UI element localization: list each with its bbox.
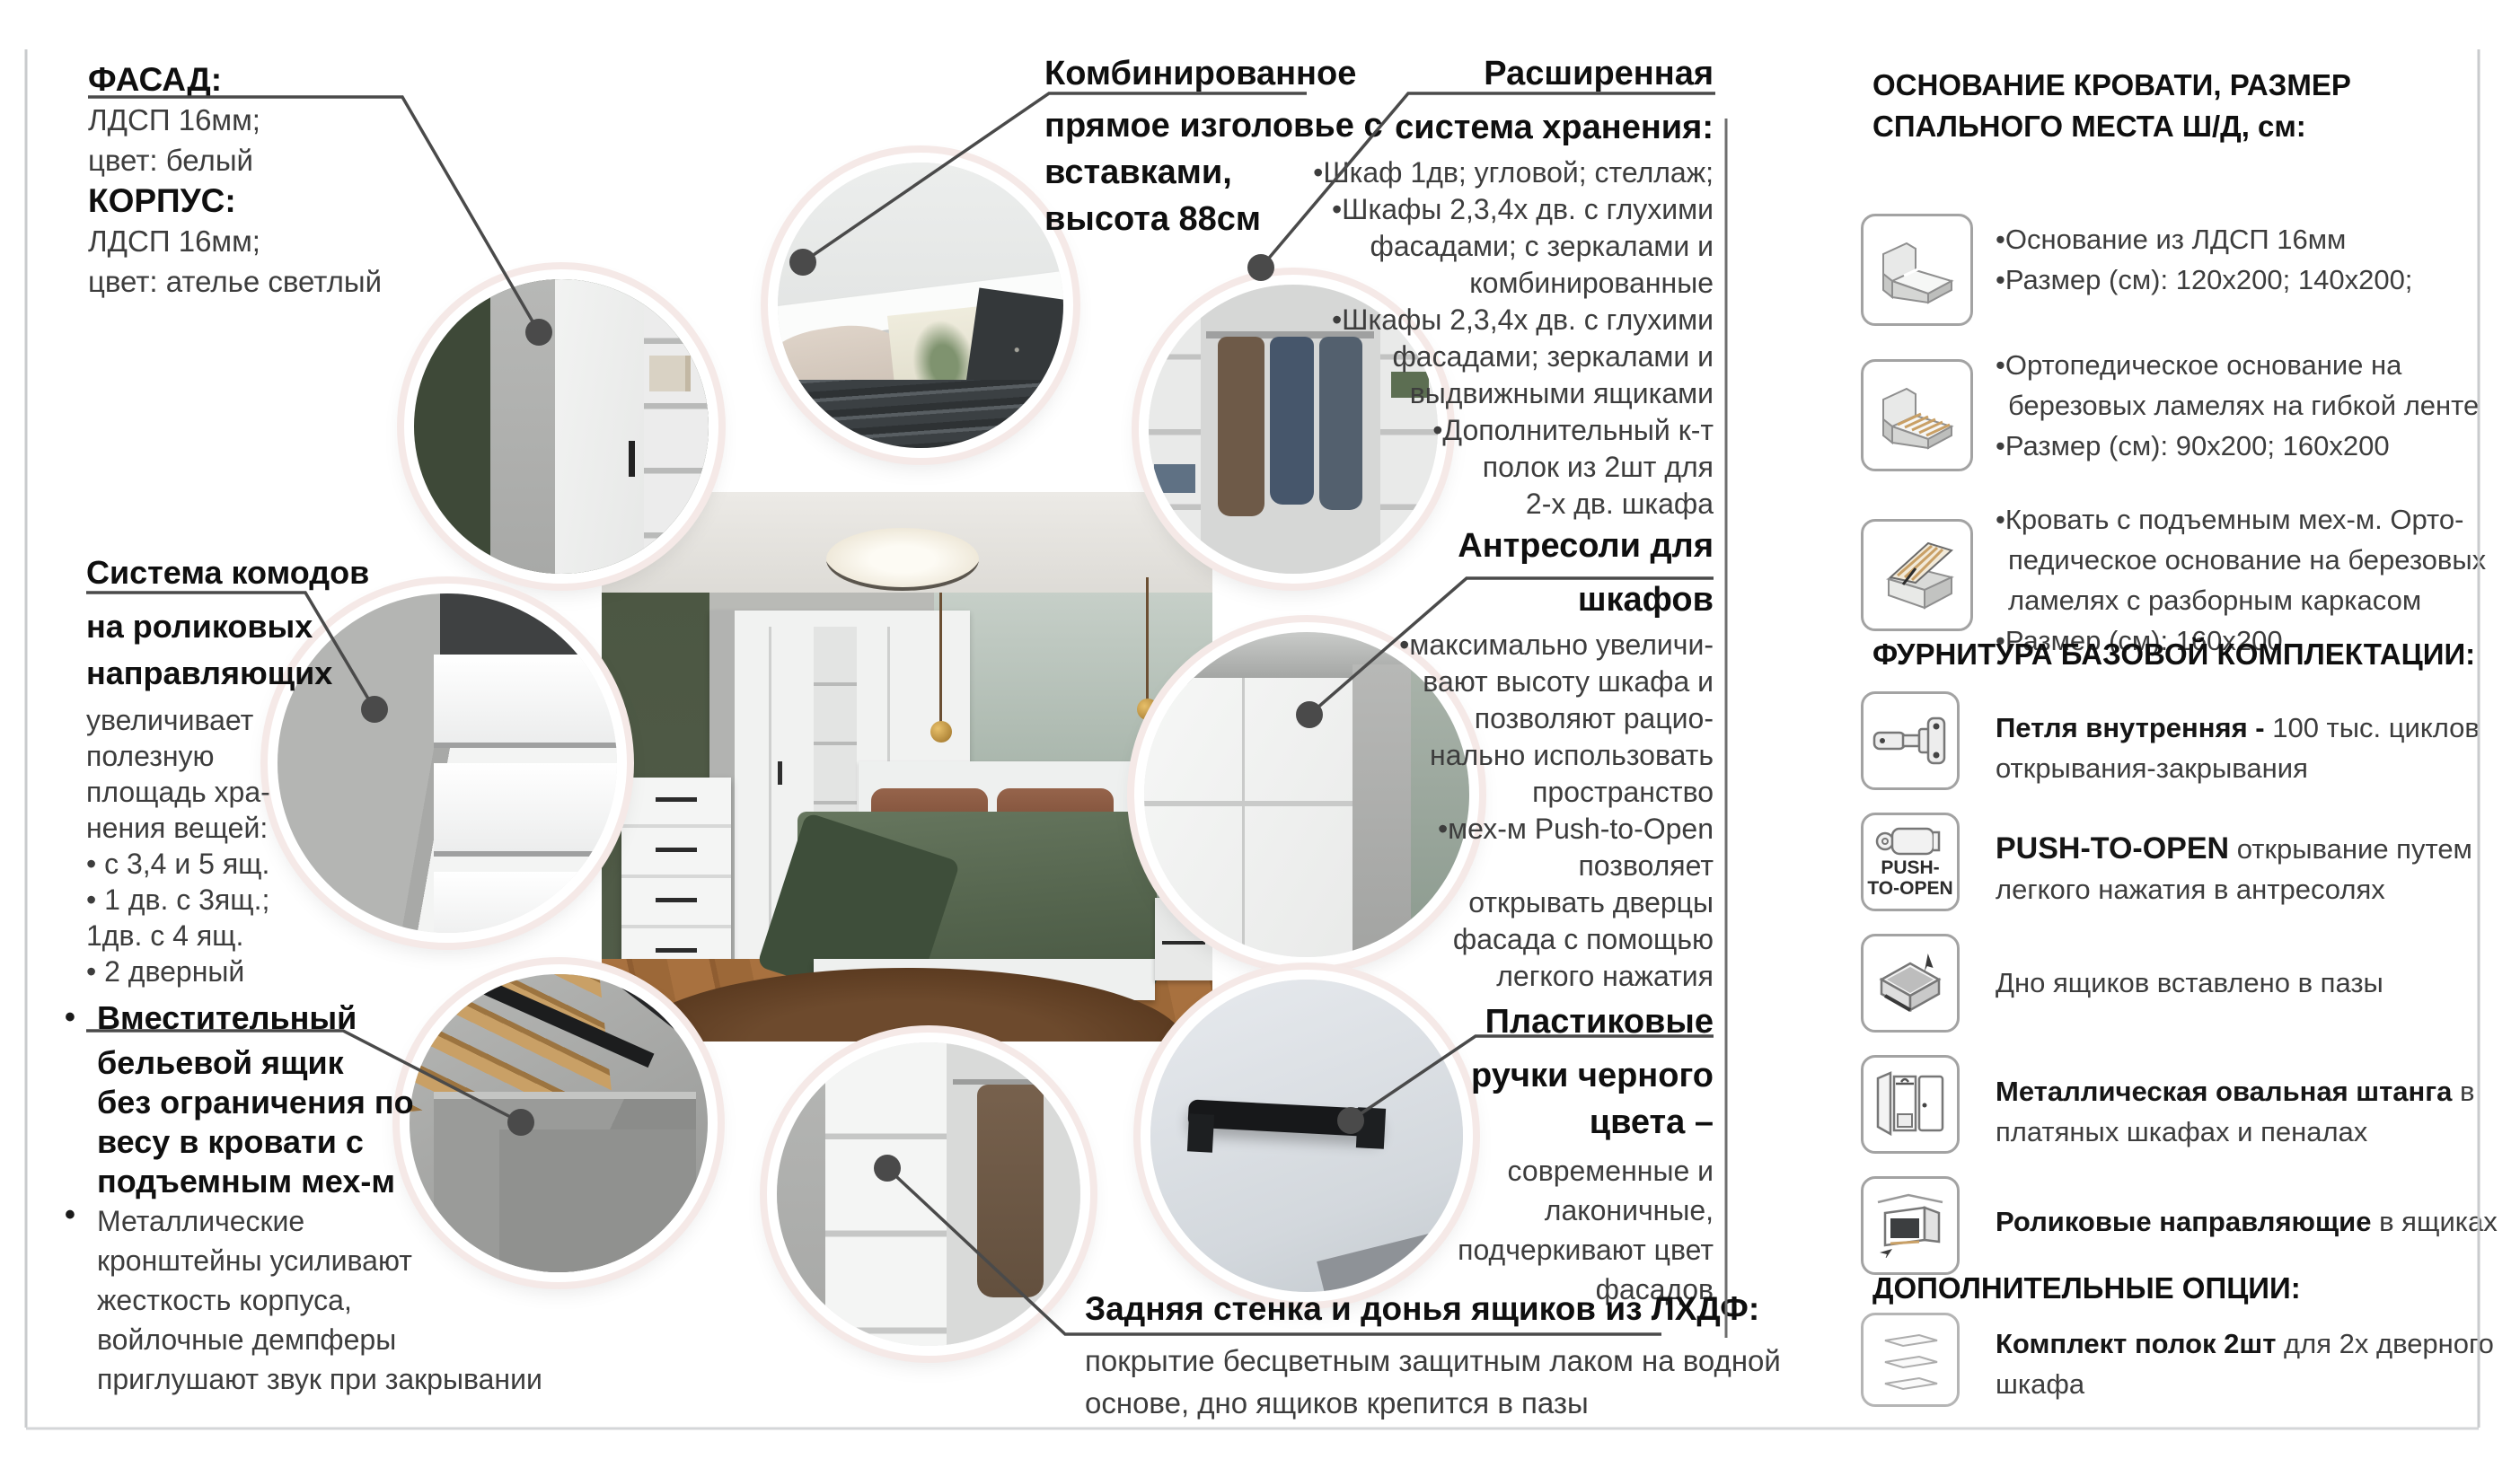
leader-handles — [1351, 1036, 1714, 1121]
leader-dot — [789, 249, 816, 276]
leader-dot — [507, 1109, 534, 1136]
leader-headboard — [803, 93, 1307, 262]
leader-dot — [525, 319, 552, 346]
leader-mezzanine — [1309, 578, 1714, 715]
leader-dot — [361, 696, 388, 723]
furniture-infographic-page: ФАСАД: ЛДСП 16мм; цвет: белый КОРПУС: ЛД… — [0, 0, 2520, 1459]
leader-dot — [1337, 1107, 1364, 1134]
leader-lines — [86, 93, 1715, 1334]
leader-dressers — [86, 593, 374, 709]
leader-dot — [1296, 701, 1323, 728]
leader-storage — [1261, 93, 1715, 268]
leader-backwall — [887, 1168, 1661, 1334]
leader-facade — [88, 97, 539, 332]
leader-dot — [1247, 254, 1274, 281]
leader-dots — [361, 249, 1364, 1182]
leader-linen — [86, 1031, 521, 1122]
connector-overlay — [0, 0, 2520, 1459]
leader-dot — [874, 1155, 901, 1182]
